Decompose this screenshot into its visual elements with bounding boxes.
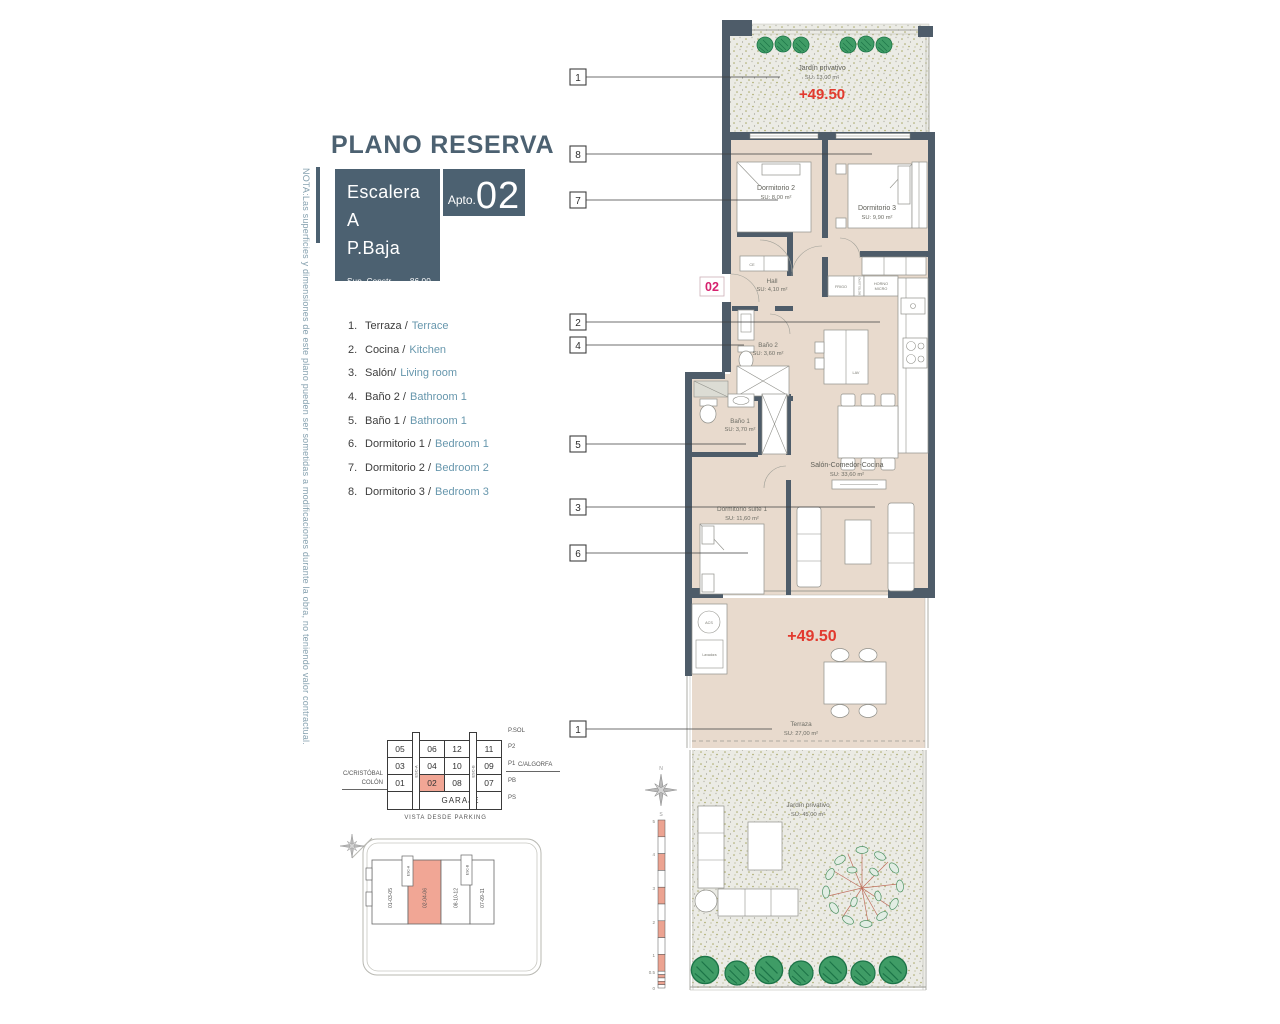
label-ps: PS — [508, 795, 516, 801]
apartment: 02 Dormitorio 2 SU: 8,00 m² Dormitorio 3 — [685, 132, 935, 598]
svg-text:Salón-Comedor-Cocina: Salón-Comedor-Cocina — [810, 462, 883, 469]
floor-plan: Jardín privativo SU: 13,00 m² +49.50 — [550, 10, 950, 1010]
garage-cell: 03 — [387, 757, 413, 775]
label-p2: P2 — [508, 744, 515, 750]
svg-text:Baño 2: Baño 2 — [758, 342, 778, 349]
svg-text:4: 4 — [652, 852, 655, 857]
garage-cell: 08 — [444, 774, 470, 792]
note-accent-bar — [316, 167, 320, 243]
garage-label-cell: GARAJE — [419, 791, 502, 810]
callout-1-terrace: 1 — [575, 725, 581, 736]
callout-5: 5 — [575, 440, 581, 451]
svg-text:SU: 27,00 m²: SU: 27,00 m² — [784, 731, 818, 737]
garage-cell-highlighted: 02 — [419, 774, 445, 792]
svg-text:FRIGO: FRIGO — [835, 285, 847, 289]
garage-cell: 04 — [419, 757, 445, 775]
legend-item: 1.Terraza /Terrace — [348, 314, 489, 338]
svg-text:Jardín privativo: Jardín privativo — [786, 802, 830, 809]
reservation-plan-page: NOTA:Las superficies y dimensiones de es… — [0, 0, 1280, 1024]
compass-south: S — [659, 812, 663, 818]
svg-text:SU: 4,10 m²: SU: 4,10 m² — [757, 287, 788, 293]
stair-name: Escalera A — [347, 179, 436, 235]
legend-item: 8.Dormitorio 3 /Bedroom 3 — [348, 480, 489, 504]
callout-3: 3 — [575, 503, 581, 514]
site-esc-b: ESC-B — [466, 864, 470, 875]
stair-info-box: Escalera A P.Baja Sup. Constr........86,… — [335, 169, 440, 281]
svg-text:1: 1 — [652, 953, 655, 958]
room-legend: 1.Terraza /Terrace 2.Cocina /Kitchen 3.S… — [348, 314, 489, 504]
callout-8: 8 — [575, 150, 581, 161]
svg-text:0: 0 — [652, 986, 655, 991]
svg-text:0.5: 0.5 — [649, 970, 656, 975]
garage-cell: 09 — [476, 757, 502, 775]
site-plan: ESC-A ESC-B 01-03-05 02-04-06 08-10-12 0… — [338, 826, 553, 1006]
callout-6: 6 — [575, 549, 581, 560]
garage-cell: 11 — [476, 740, 502, 758]
svg-text:Hall: Hall — [766, 278, 777, 285]
svg-text:5: 5 — [652, 819, 655, 824]
scale-bar: 5 4 3 2 1 0.5 0 — [649, 819, 665, 991]
garage-cell: 06 — [419, 740, 445, 758]
callout-4: 4 — [575, 341, 581, 352]
garden-bottom: Jardín privativo SU: 45,00 m² — [690, 750, 926, 990]
label-pb: PB — [508, 778, 516, 784]
svg-text:ACS: ACS — [705, 621, 713, 625]
garage-caption: VISTA DESDE PARKING — [389, 815, 502, 821]
legend-item: 5.Baño 1 /Bathroom 1 — [348, 409, 489, 433]
garage-cell: 01 — [387, 774, 413, 792]
callout-1: 1 — [575, 73, 581, 84]
site-block-label: 01-03-05 — [388, 888, 394, 908]
street-left-label-1: C/CRISTÓBAL — [320, 771, 383, 777]
svg-text:SU: 3,60 m²: SU: 3,60 m² — [753, 351, 784, 357]
svg-text:CE: CE — [749, 263, 755, 267]
legend-item: 7.Dormitorio 2 /Bedroom 2 — [348, 456, 489, 480]
garden-top-area: SU: 13,00 m² — [805, 75, 839, 81]
apartment-box: Apto. 02 — [443, 169, 525, 216]
elevation-top: +49.50 — [799, 86, 845, 103]
svg-text:HORNO: HORNO — [874, 282, 888, 286]
svg-text:SU: 11,60 m²: SU: 11,60 m² — [725, 516, 759, 522]
svg-text:Baño 1: Baño 1 — [730, 418, 750, 425]
svg-text:Lavadora: Lavadora — [702, 653, 716, 657]
svg-text:Dormitorio 3: Dormitorio 3 — [858, 205, 896, 212]
garden-top: Jardín privativo SU: 13,00 m² +49.50 — [722, 20, 933, 135]
site-block-label: 08-10-12 — [454, 888, 460, 908]
legend-item: 2.Cocina /Kitchen — [348, 338, 489, 362]
svg-text:LAV: LAV — [853, 371, 860, 375]
svg-text:3: 3 — [652, 886, 655, 891]
terrace: ACS Lavadora +49.50 Terraza SU: 27,00 m² — [685, 598, 928, 748]
apto-number: 02 — [476, 179, 520, 213]
svg-text:MICRO: MICRO — [875, 287, 888, 291]
elevation-terrace: +49.50 — [787, 628, 836, 645]
garage-empty-cell — [387, 791, 413, 810]
street-right-label: C/ALGORFA — [518, 762, 552, 768]
built-surface: Sup. Constr........86,00 m² — [347, 276, 436, 301]
vertical-note: NOTA:Las superficies y dimensiones de es… — [301, 168, 311, 868]
site-building: ESC-A ESC-B 01-03-05 02-04-06 08-10-12 0… — [366, 855, 494, 924]
bedroom-2: Dormitorio 2 SU: 8,00 m² — [737, 162, 811, 232]
site-esc-a: ESC-A — [407, 865, 411, 876]
svg-text:SU: 45,00 m²: SU: 45,00 m² — [791, 812, 825, 818]
floor-name: P.Baja — [347, 235, 436, 263]
legend-item: 4.Baño 2 /Bathroom 1 — [348, 385, 489, 409]
svg-text:SU: 33,60 m²: SU: 33,60 m² — [830, 472, 864, 478]
svg-text:Dormitorio 2: Dormitorio 2 — [757, 185, 795, 192]
site-block-label: 02-04-06 — [423, 888, 429, 908]
legend-item: 3.Salón/Living room — [348, 361, 489, 385]
legend-item: 6.Dormitorio 1 /Bedroom 1 — [348, 432, 489, 456]
stair-column-b: ESC-B — [469, 732, 477, 810]
svg-text:2: 2 — [652, 920, 655, 925]
garage-cell: 10 — [444, 757, 470, 775]
label-p1: P1 — [508, 761, 515, 767]
garden-top-name: Jardín privativo — [798, 65, 846, 72]
stair-column-a: ESC-A — [412, 732, 420, 810]
callout-7: 7 — [575, 196, 581, 207]
svg-text:BOTELLERO: BOTELLERO — [858, 276, 862, 295]
page-title: PLANO RESERVA — [331, 131, 554, 160]
street-line — [342, 789, 387, 790]
garage-cell: 07 — [476, 774, 502, 792]
compass-north: N — [659, 766, 663, 772]
compass-icon — [645, 774, 677, 806]
apto-label: Apto. — [448, 193, 476, 207]
svg-text:SU: 9,90 m²: SU: 9,90 m² — [862, 215, 893, 221]
apartment-door-number: 02 — [705, 280, 719, 294]
svg-text:Terraza: Terraza — [790, 721, 812, 728]
compass-icon — [340, 834, 364, 858]
label-psol: P.SOL — [508, 728, 525, 734]
site-block-label: 07-09-11 — [480, 888, 486, 908]
street-left-label-2: COLÓN — [320, 780, 383, 786]
garage-cell: 12 — [444, 740, 470, 758]
garage-cell: 05 — [387, 740, 413, 758]
svg-text:SU: 3,70 m²: SU: 3,70 m² — [725, 427, 756, 433]
callout-2: 2 — [575, 318, 581, 329]
